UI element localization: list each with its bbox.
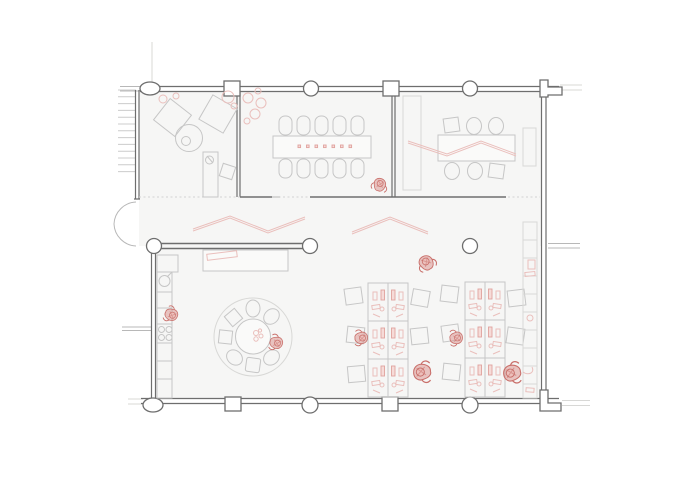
column: [143, 398, 163, 412]
column: [302, 397, 318, 413]
conference-table: [273, 136, 371, 158]
column: [382, 397, 398, 411]
floor-plan-drawing: [0, 0, 700, 495]
entrance-door: [114, 202, 136, 246]
column: [304, 81, 319, 96]
column: [225, 397, 241, 411]
reception-desk: [203, 250, 288, 271]
column: [462, 397, 478, 413]
column: [303, 239, 318, 254]
column: [540, 390, 561, 411]
column: [463, 239, 478, 254]
column: [383, 81, 399, 96]
column: [224, 81, 240, 96]
column: [147, 239, 162, 254]
column: [463, 81, 478, 96]
floor-plan-canvas: [0, 0, 700, 495]
meeting-table: [438, 135, 515, 161]
column: [140, 82, 160, 95]
round-table: [236, 319, 271, 354]
stairs: [118, 90, 136, 172]
column: [540, 80, 562, 97]
